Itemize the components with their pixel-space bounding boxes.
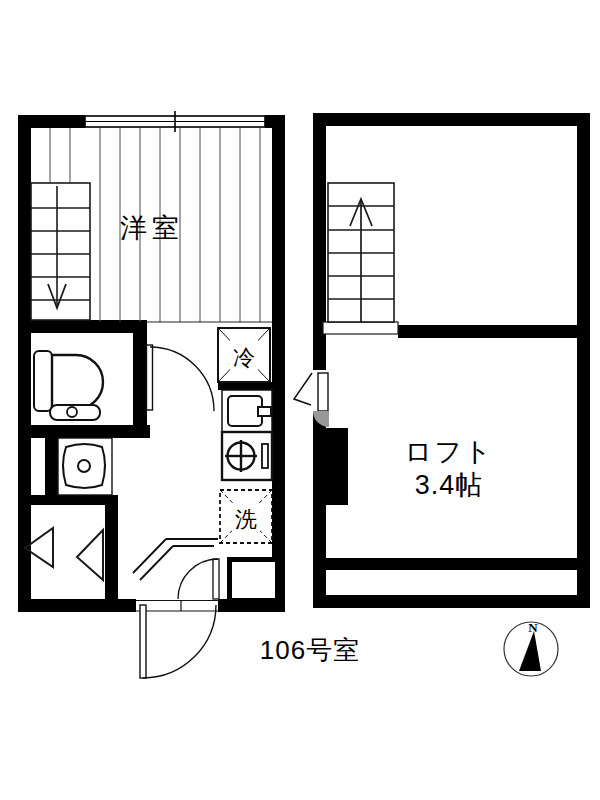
loft-wall-top (313, 113, 590, 126)
loft-wall-right (577, 113, 590, 608)
stair-landing (323, 322, 398, 334)
compass-north-label: N (528, 620, 538, 635)
wall-closet-right (105, 505, 118, 599)
loft-size-label: 3.4帖 (415, 470, 484, 500)
wall-kitchen-divider (218, 382, 285, 390)
staircase-down-icon (31, 183, 90, 320)
entrance-porch (232, 562, 275, 598)
wall-left (18, 115, 31, 612)
wall-room-divider (18, 320, 147, 333)
entrance-step-door-icon (178, 559, 219, 599)
refrigerator-box: 冷 (218, 328, 270, 382)
wall-basin-bottom (18, 495, 118, 505)
first-floor-plan: 洋室 冷 (18, 111, 285, 678)
loft-hatch-icon (294, 371, 329, 427)
western-room-label: 洋室 (120, 213, 184, 243)
staircase-up-icon (328, 183, 394, 322)
stove-icon (222, 432, 272, 480)
loft-wall-bottom (313, 595, 590, 608)
toilet-icon (34, 351, 103, 420)
closet-door-icon (25, 528, 103, 580)
loft-room-bottom-wall (326, 558, 577, 570)
room-number-label: 106号室 (260, 635, 360, 665)
refrigerator-label: 冷 (233, 345, 255, 370)
washer-box: 洗 (220, 490, 272, 543)
washer-label: 洗 (235, 507, 257, 532)
floor-plan-page: 洋室 冷 (0, 0, 600, 800)
floor-plan-drawing: 洋室 冷 (0, 0, 600, 800)
wall-bottom-left (18, 599, 136, 612)
loft-wall-left-lower (313, 413, 326, 608)
window-icon (85, 111, 265, 132)
loft-room-label: ロフト (405, 437, 494, 467)
wall-toilet-right (133, 333, 147, 425)
entrance-door-icon (136, 600, 218, 678)
loft-floor-plan: ロフト 3.4帖 (294, 113, 590, 608)
loft-access-arrow-icon (294, 373, 312, 405)
loft-wall-middle (398, 325, 577, 338)
washbasin-icon (58, 438, 112, 495)
loft-wall-notch (326, 428, 348, 505)
entrance-hall-walls (133, 539, 218, 580)
wall-bottom-right (218, 599, 285, 612)
wall-toilet-bottom (18, 425, 150, 438)
kitchen-sink-icon (222, 390, 272, 432)
hall-door-icon (147, 345, 215, 411)
compass-icon: N (504, 620, 558, 676)
wall-right (272, 115, 285, 612)
